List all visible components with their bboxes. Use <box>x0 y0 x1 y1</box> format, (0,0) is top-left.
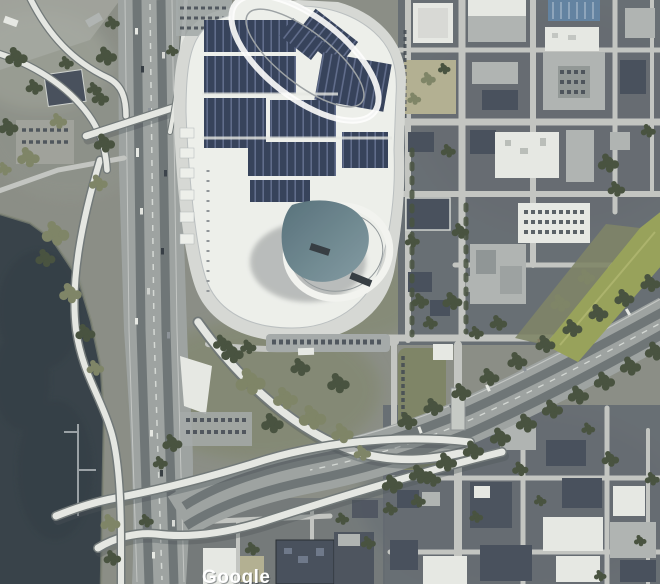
haze-overlay <box>0 0 660 584</box>
satellite-map-canvas[interactable]: Google Google <box>0 0 660 584</box>
google-watermark[interactable]: Google Google <box>202 567 271 584</box>
google-watermark-text: Google <box>202 567 270 584</box>
